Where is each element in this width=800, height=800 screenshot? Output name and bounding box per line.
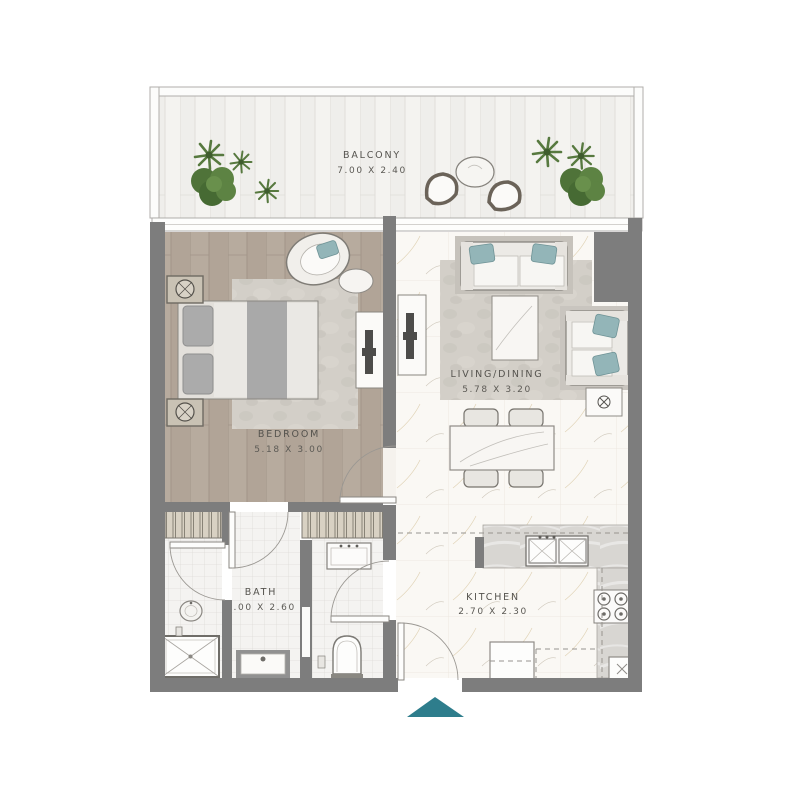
toilet bbox=[331, 636, 363, 679]
bedroom-door-threshold bbox=[383, 448, 396, 502]
entrance-arrow bbox=[407, 697, 464, 717]
living-tv-console bbox=[398, 295, 426, 375]
wc-sink bbox=[327, 543, 371, 569]
bedroom-tv-console bbox=[356, 312, 384, 388]
living-dining-label: LIVING/DINING bbox=[451, 369, 544, 380]
living-dining-dimensions: 5.78 X 3.20 bbox=[462, 385, 532, 395]
bed-blanket bbox=[247, 301, 287, 399]
nightstand-bottom bbox=[167, 399, 203, 426]
bath-label: BATH bbox=[245, 587, 277, 598]
kitchen-dimensions: 2.70 X 2.30 bbox=[458, 607, 528, 617]
dining-chair bbox=[464, 409, 498, 427]
wardrobe-left bbox=[165, 510, 222, 538]
teal-cushion bbox=[469, 243, 495, 264]
teal-cushion bbox=[531, 243, 557, 264]
lounge-chair-left bbox=[427, 174, 457, 204]
lamp-side-table bbox=[586, 388, 622, 416]
kitchen-label: KITCHEN bbox=[466, 592, 520, 603]
double-bed bbox=[178, 301, 318, 399]
wall-niche bbox=[302, 607, 310, 657]
hob bbox=[594, 590, 631, 623]
bedroom-label: BEDROOM bbox=[258, 429, 320, 440]
coffee-table bbox=[492, 296, 538, 360]
balcony-dimensions: 7.00 X 2.40 bbox=[337, 166, 407, 176]
floor-plan: BALCONY 7.00 X 2.40 bbox=[0, 0, 800, 800]
double-sink bbox=[526, 536, 588, 567]
floor-plan-page: BALCONY 7.00 X 2.40 bbox=[0, 0, 800, 800]
bath-dimensions: 3.00 X 2.60 bbox=[226, 603, 296, 613]
balcony-label: BALCONY bbox=[343, 150, 401, 161]
bedroom-dimensions: 5.18 X 3.00 bbox=[254, 445, 324, 455]
sofa bbox=[461, 242, 567, 290]
bed-pillow-bottom bbox=[183, 354, 213, 394]
wardrobe-right bbox=[302, 510, 383, 538]
sliding-door bbox=[152, 218, 642, 231]
vanity-sink bbox=[236, 650, 290, 678]
balcony-round-table bbox=[456, 157, 494, 187]
balcony: BALCONY 7.00 X 2.40 bbox=[150, 87, 643, 218]
dining-chair bbox=[509, 469, 543, 487]
bedroom-side-table bbox=[339, 269, 373, 293]
nightstand-top bbox=[167, 276, 203, 303]
lounge-chair-right bbox=[489, 182, 520, 210]
structural-column bbox=[594, 232, 642, 302]
shower bbox=[162, 636, 219, 677]
dining-chair bbox=[509, 409, 543, 427]
bathroom-bin bbox=[318, 656, 325, 668]
bed-pillow-top bbox=[183, 306, 213, 346]
dining-chair bbox=[464, 469, 498, 487]
fridge bbox=[490, 642, 534, 680]
loveseat bbox=[566, 311, 628, 385]
